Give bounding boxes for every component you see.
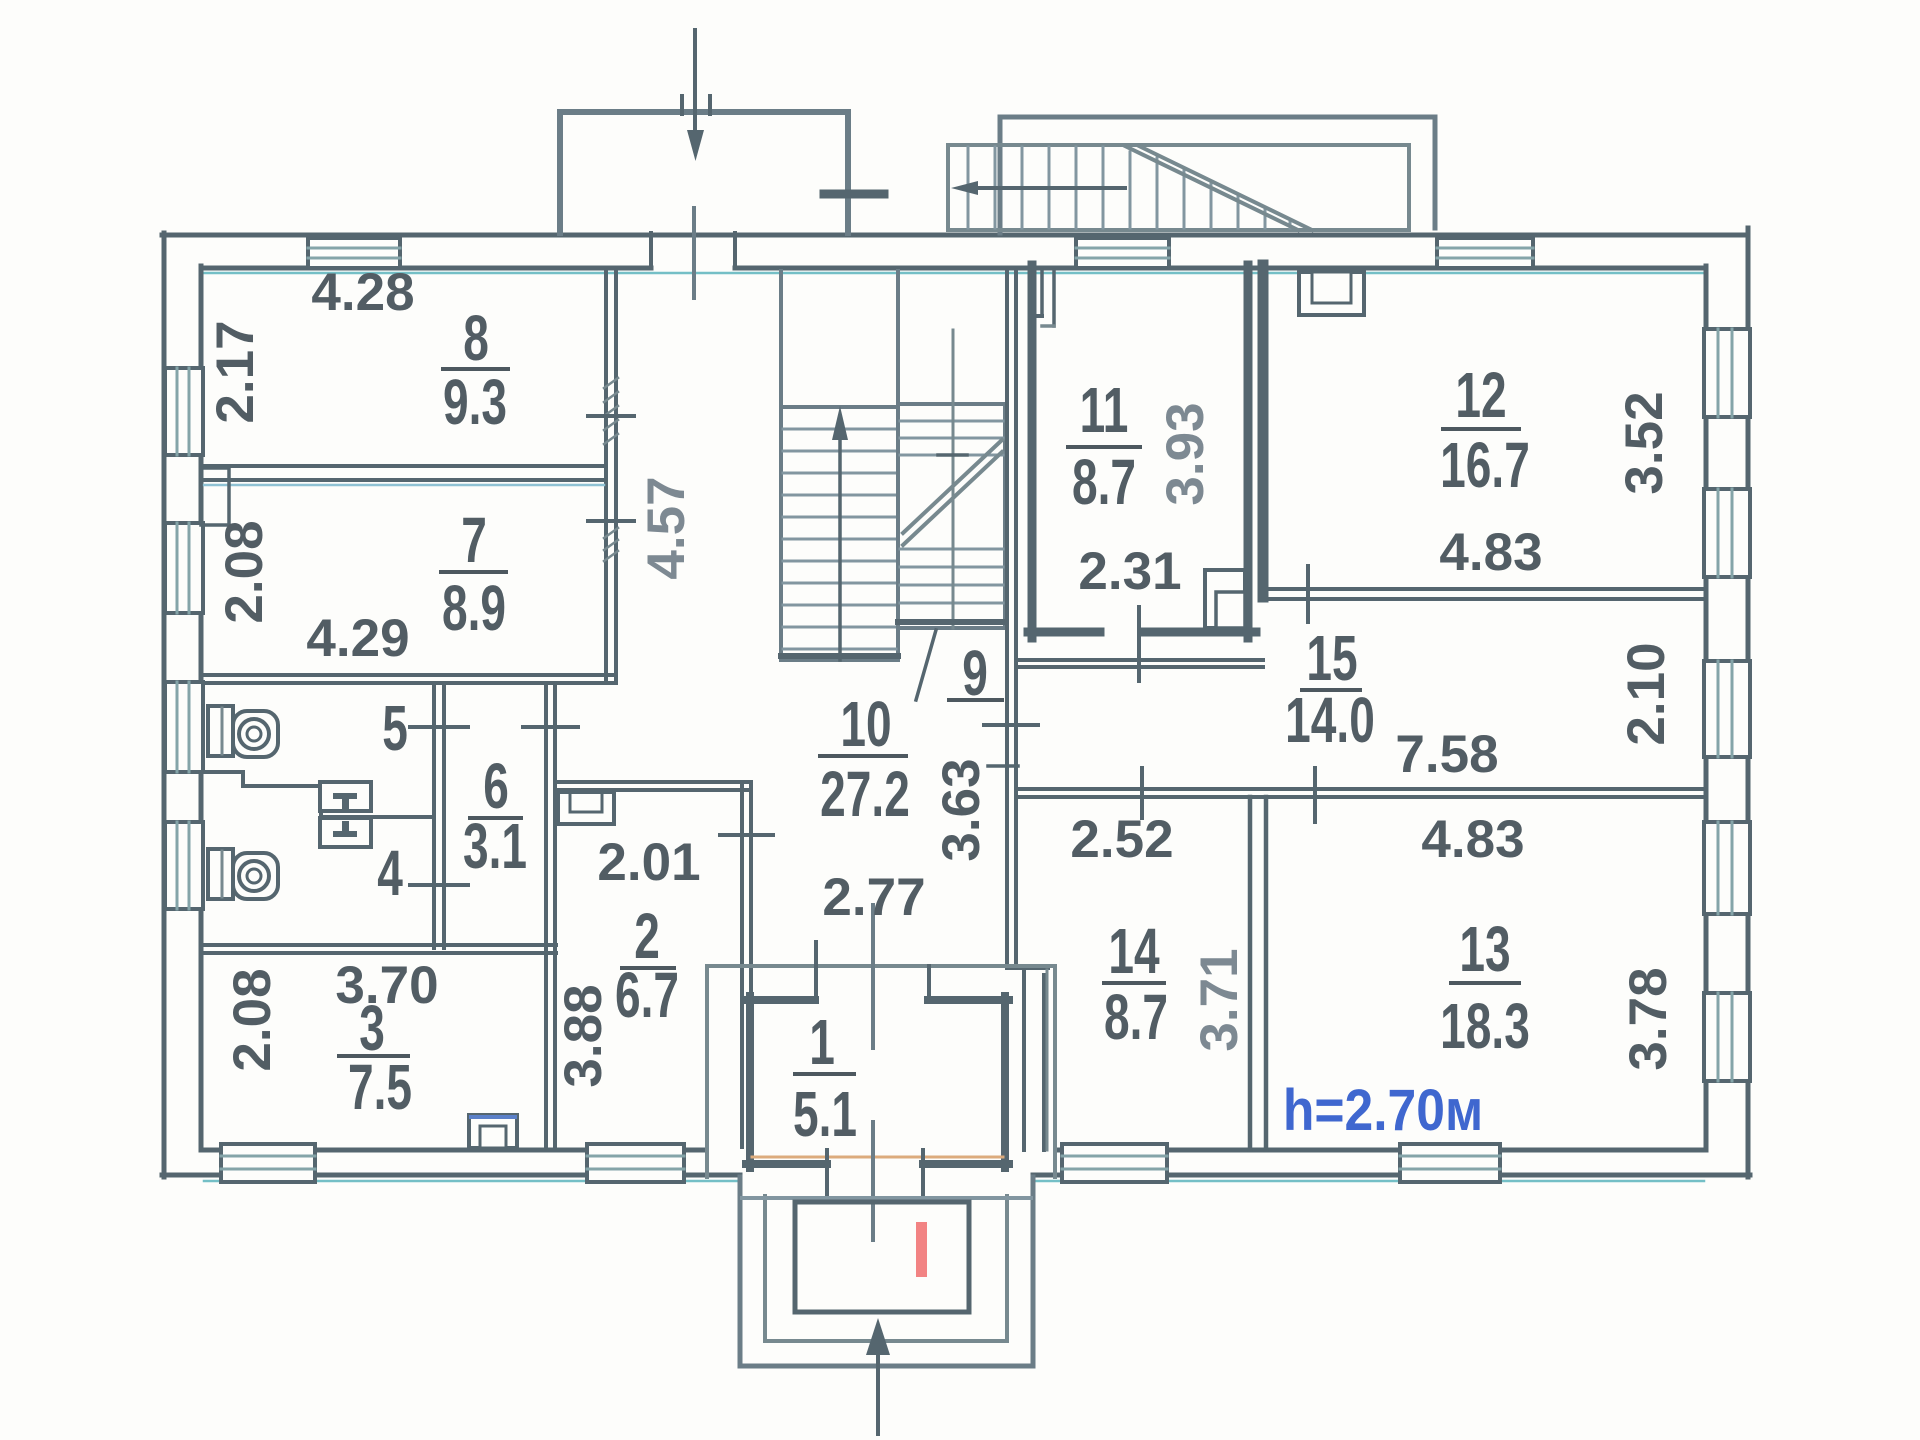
svg-text:13: 13 bbox=[1459, 914, 1510, 985]
svg-text:6.7: 6.7 bbox=[615, 960, 679, 1031]
svg-text:8.9: 8.9 bbox=[442, 573, 506, 644]
svg-text:3.52: 3.52 bbox=[1615, 391, 1674, 494]
svg-text:7.5: 7.5 bbox=[348, 1052, 412, 1123]
svg-text:3.88: 3.88 bbox=[554, 984, 613, 1087]
svg-text:9.3: 9.3 bbox=[443, 367, 507, 438]
svg-text:2.31: 2.31 bbox=[1078, 542, 1181, 601]
svg-text:3.1: 3.1 bbox=[463, 811, 527, 882]
svg-text:4.83: 4.83 bbox=[1439, 523, 1542, 582]
svg-text:4.29: 4.29 bbox=[306, 609, 409, 668]
svg-text:2.08: 2.08 bbox=[215, 520, 274, 623]
svg-text:2.01: 2.01 bbox=[597, 833, 700, 892]
svg-text:3.70: 3.70 bbox=[335, 956, 438, 1015]
svg-text:3.78: 3.78 bbox=[1619, 967, 1678, 1070]
svg-text:5.1: 5.1 bbox=[793, 1079, 857, 1150]
svg-text:27.2: 27.2 bbox=[820, 759, 910, 830]
svg-text:5: 5 bbox=[382, 693, 408, 764]
svg-text:7.58: 7.58 bbox=[1395, 725, 1498, 784]
svg-text:8.7: 8.7 bbox=[1072, 447, 1136, 518]
svg-text:1: 1 bbox=[809, 1007, 835, 1078]
svg-text:3.63: 3.63 bbox=[932, 758, 991, 861]
svg-text:4.83: 4.83 bbox=[1421, 810, 1524, 869]
svg-text:h=2.70м: h=2.70м bbox=[1283, 1077, 1483, 1142]
svg-text:14.0: 14.0 bbox=[1285, 685, 1375, 756]
svg-text:15: 15 bbox=[1306, 623, 1357, 694]
svg-text:2.10: 2.10 bbox=[1617, 642, 1676, 745]
svg-text:8: 8 bbox=[463, 303, 489, 374]
svg-text:10: 10 bbox=[840, 689, 891, 760]
svg-text:2.77: 2.77 bbox=[822, 868, 925, 927]
svg-text:2.08: 2.08 bbox=[223, 968, 282, 1071]
svg-text:18.3: 18.3 bbox=[1440, 991, 1530, 1062]
svg-text:12: 12 bbox=[1455, 360, 1506, 431]
svg-text:3.71: 3.71 bbox=[1190, 948, 1249, 1051]
svg-text:4.28: 4.28 bbox=[311, 263, 414, 322]
svg-text:8.7: 8.7 bbox=[1104, 982, 1168, 1053]
svg-text:16.7: 16.7 bbox=[1440, 430, 1530, 501]
svg-text:7: 7 bbox=[461, 505, 487, 576]
svg-text:14: 14 bbox=[1108, 916, 1159, 987]
svg-text:4: 4 bbox=[377, 838, 403, 909]
svg-text:2.17: 2.17 bbox=[206, 320, 265, 423]
svg-text:4.57: 4.57 bbox=[637, 476, 696, 579]
svg-text:2.52: 2.52 bbox=[1070, 810, 1173, 869]
svg-text:3.93: 3.93 bbox=[1156, 402, 1215, 505]
svg-text:11: 11 bbox=[1080, 375, 1129, 446]
